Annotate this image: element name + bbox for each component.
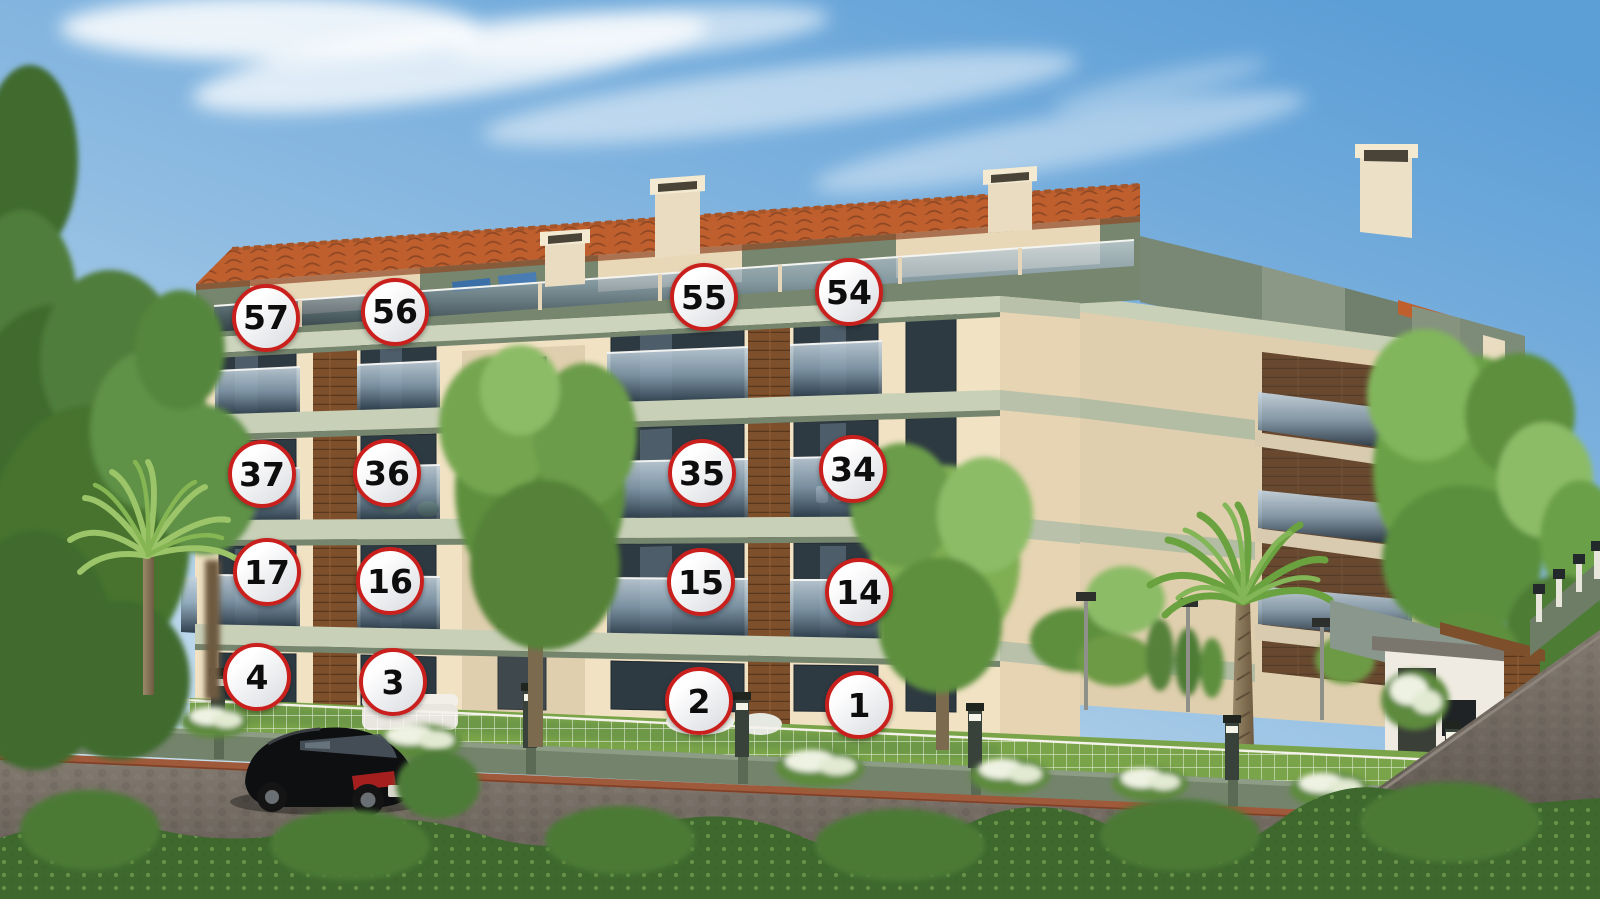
unit-badge-2[interactable]: 2 [665,667,733,735]
apartment-rendering: 5756555437363534171615144321 [0,0,1600,899]
unit-number: 36 [364,457,410,490]
unit-number: 34 [830,453,876,486]
unit-badge-1[interactable]: 1 [825,671,893,739]
unit-number: 1 [848,689,871,722]
unit-badge-54[interactable]: 54 [815,258,883,326]
unit-badge-36[interactable]: 36 [353,439,421,507]
unit-badge-35[interactable]: 35 [668,439,736,507]
unit-number: 4 [246,661,269,694]
unit-badge-37[interactable]: 37 [228,440,296,508]
unit-badge-3[interactable]: 3 [359,648,427,716]
unit-badge-57[interactable]: 57 [232,284,300,352]
unit-badge-56[interactable]: 56 [361,278,429,346]
unit-badge-16[interactable]: 16 [356,547,424,615]
unit-number: 16 [367,565,413,598]
unit-number: 55 [681,281,727,314]
unit-number: 54 [826,276,872,309]
unit-number: 14 [836,576,882,609]
unit-badge-4[interactable]: 4 [223,643,291,711]
unit-number: 35 [679,457,725,490]
unit-number: 57 [243,301,289,334]
unit-number: 15 [678,566,724,599]
unit-badge-17[interactable]: 17 [233,538,301,606]
unit-number: 37 [239,458,285,491]
unit-badge-15[interactable]: 15 [667,548,735,616]
unit-number: 17 [244,556,290,589]
unit-number: 56 [372,295,418,328]
unit-badges-layer: 5756555437363534171615144321 [0,0,1600,899]
unit-badge-55[interactable]: 55 [670,263,738,331]
unit-number: 3 [382,666,405,699]
unit-badge-14[interactable]: 14 [825,558,893,626]
unit-badge-34[interactable]: 34 [819,435,887,503]
unit-number: 2 [688,685,711,718]
